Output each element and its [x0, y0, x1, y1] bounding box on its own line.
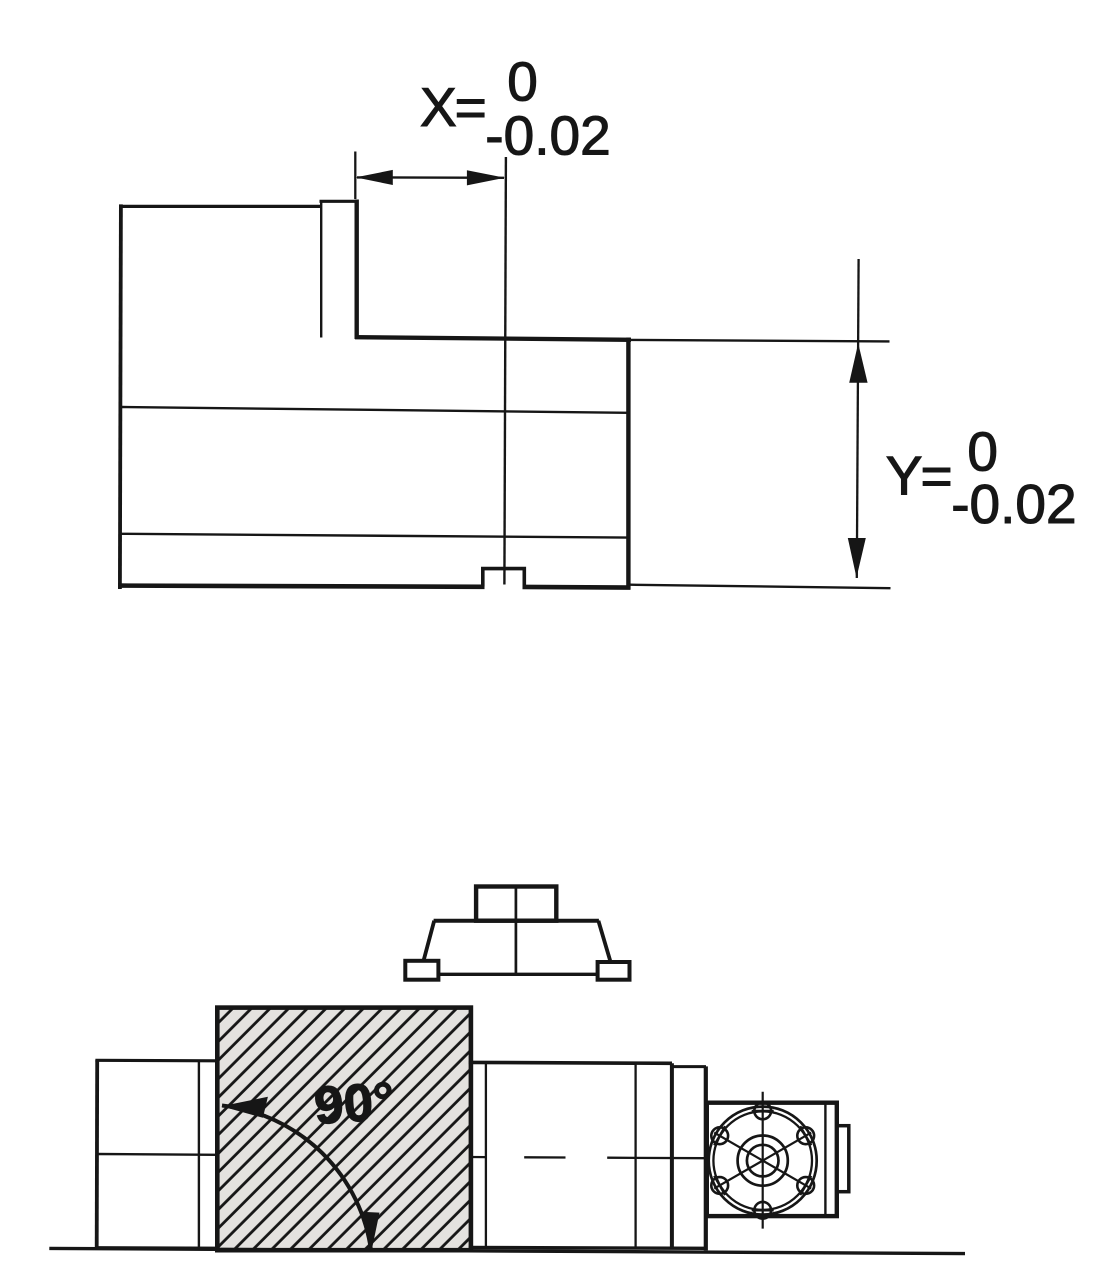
svg-text:Y=: Y=	[886, 444, 951, 506]
svg-text:X=: X=	[420, 76, 485, 138]
svg-text:90°: 90°	[312, 1072, 396, 1136]
svg-text:-0.02: -0.02	[951, 473, 1076, 535]
svg-text:-0.02: -0.02	[485, 105, 610, 167]
svg-text:0: 0	[507, 50, 538, 112]
